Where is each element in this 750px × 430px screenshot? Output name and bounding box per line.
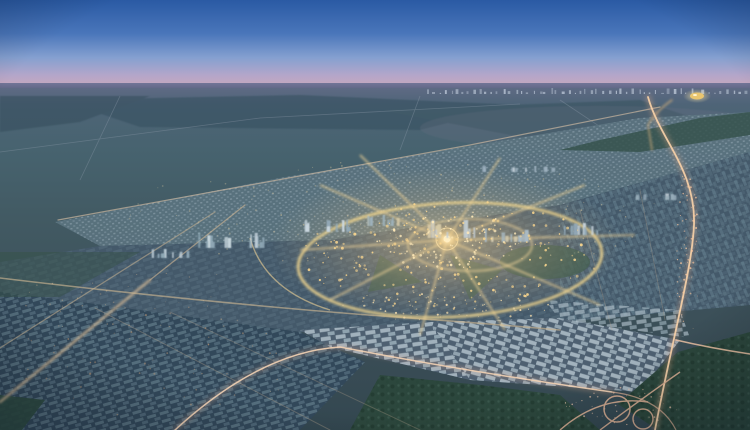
scene-canvas [0,0,750,430]
vignette [0,0,750,430]
aerial-city-rendering [0,0,750,430]
